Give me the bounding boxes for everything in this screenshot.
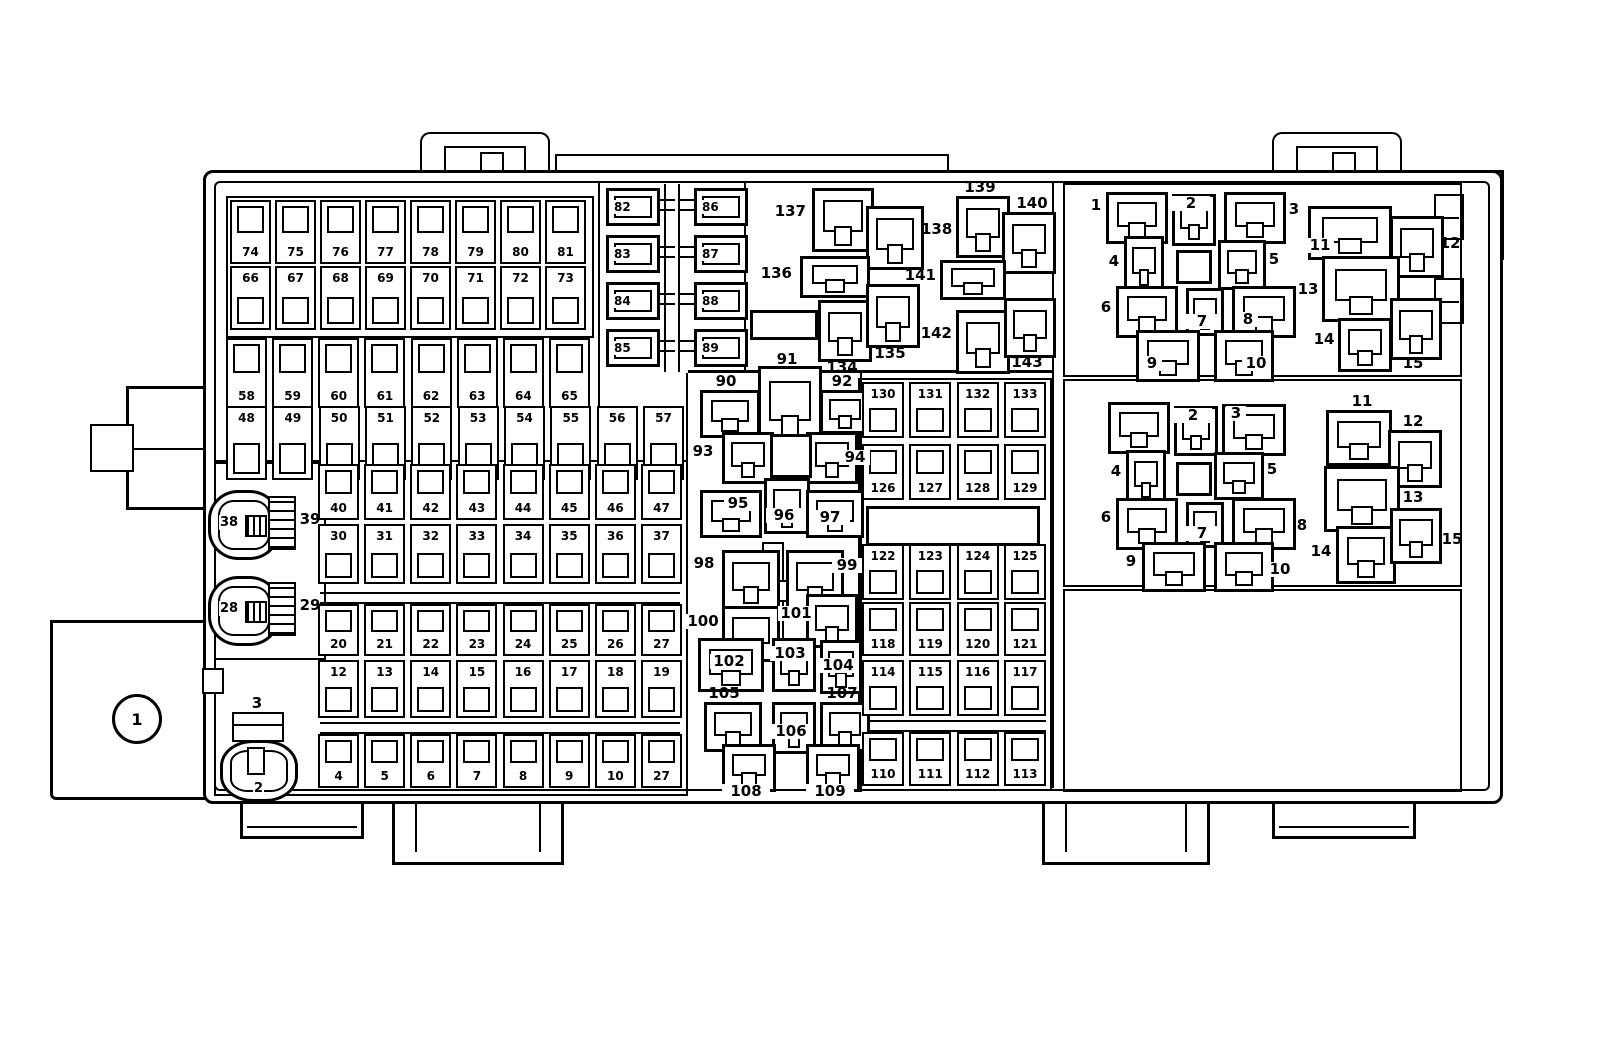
fuse-18-label: 18 (597, 666, 634, 678)
fuse-70-label: 70 (412, 272, 449, 284)
fuse-row-110-113: 110111112113 (862, 732, 1046, 786)
fuse-110: 110 (862, 732, 904, 786)
right-grid-slot (866, 506, 1040, 546)
fuse-53-label: 53 (460, 412, 497, 424)
fuse-46-label: 46 (597, 502, 634, 514)
fuse-89-label: 89 (701, 341, 720, 355)
fuse-26: 26 (595, 604, 636, 656)
fuse-83-label: 83 (613, 247, 632, 261)
fuse-6: 6 (410, 734, 451, 788)
rbt-13-label: 13 (1296, 282, 1320, 297)
fuse-117-label: 117 (1006, 666, 1044, 678)
relay-98 (722, 550, 780, 610)
fuse-68-label: 68 (322, 272, 359, 284)
rbt-relay-4 (1124, 236, 1164, 292)
label-39: 39 (296, 512, 324, 527)
rbm-8-label: 8 (1292, 518, 1312, 533)
mounting-tab-bottom-2 (392, 796, 564, 865)
fuse-56-label: 56 (599, 412, 636, 424)
rbt-2-label: 2 (1172, 196, 1210, 211)
fuse-59-label: 59 (274, 390, 311, 402)
fuse-65: 65 (549, 338, 590, 408)
fuse-69-label: 69 (367, 272, 404, 284)
fuse-123-label: 123 (911, 550, 949, 562)
fuse-84: 84 (606, 282, 660, 320)
fuse-84-label: 84 (613, 294, 632, 308)
fuse-82-label: 82 (613, 200, 632, 214)
fuse-21-label: 21 (366, 638, 403, 650)
relay-102-label: 102 (710, 654, 748, 669)
fuse-122: 122 (862, 544, 904, 600)
rbm-6-label: 6 (1098, 510, 1114, 525)
callout-1-circle: 1 (112, 694, 162, 744)
rbm-relay-unlabeled (1108, 402, 1170, 454)
relay-142 (956, 310, 1010, 374)
fuse-6-label: 6 (412, 770, 449, 782)
fuse-114-label: 114 (864, 666, 902, 678)
relay-100-label: 100 (686, 614, 720, 629)
rbt-1-label: 1 (1088, 198, 1104, 213)
relay-143 (1004, 298, 1056, 358)
fuse-60-label: 60 (320, 390, 357, 402)
side-bracket-left (126, 386, 214, 510)
relay-101-label: 101 (778, 606, 814, 621)
fuse-64-label: 64 (505, 390, 542, 402)
bracket-3-strip (232, 712, 284, 742)
fuse-51-label: 51 (367, 412, 404, 424)
fuse-15: 15 (456, 660, 497, 718)
relay-107-label: 107 (820, 686, 864, 701)
fuse-79-label: 79 (457, 246, 494, 258)
relay-141 (940, 260, 1006, 300)
fuse-75: 75 (275, 200, 316, 264)
fuse-16-label: 16 (505, 666, 542, 678)
rbm-relay-15 (1390, 508, 1442, 564)
relay-109-label: 109 (806, 784, 854, 799)
fuse-10-label: 10 (597, 770, 634, 782)
relay-136-label: 136 (752, 266, 792, 281)
fuse-78: 78 (410, 200, 451, 264)
center-socket-square (770, 434, 812, 478)
fuse-44: 44 (503, 464, 544, 520)
fuse-58-label: 58 (228, 390, 265, 402)
fuse-73: 73 (545, 266, 586, 330)
fuse-8: 8 (503, 734, 544, 788)
fuse-22-label: 22 (412, 638, 449, 650)
fuse-row-114-117: 114115116117 (862, 660, 1046, 716)
fuse-10: 10 (595, 734, 636, 788)
rbm-socket-square (1176, 462, 1212, 496)
label-29: 29 (296, 598, 324, 613)
left-wall-latch (202, 668, 224, 694)
fuse-row-58-65: 5859606162636465 (226, 338, 590, 408)
fuse-82: 82 (606, 188, 660, 226)
fuse-132-label: 132 (959, 388, 997, 400)
rbt-7-label: 7 (1186, 314, 1218, 329)
fuse-row-122-125: 122123124125 (862, 544, 1046, 600)
fuse-75-label: 75 (277, 246, 314, 258)
rbt-9-label: 9 (1142, 356, 1162, 371)
fuse-120: 120 (957, 602, 999, 656)
fuse-88-label: 88 (701, 294, 720, 308)
fuse-47-label: 47 (643, 502, 680, 514)
rbm-9-label: 9 (1122, 554, 1140, 569)
fuse-113-label: 113 (1006, 768, 1044, 780)
fuse-36: 36 (595, 524, 636, 584)
rbt-socket-square (1176, 250, 1212, 284)
rbm-relay-13 (1324, 466, 1400, 532)
fuse-116: 116 (957, 660, 999, 716)
fuse-45-label: 45 (551, 502, 588, 514)
connector-29-strip (268, 582, 296, 636)
fuse-4: 4 (318, 734, 359, 788)
fuse-111: 111 (909, 732, 951, 786)
fuse-62-label: 62 (413, 390, 450, 402)
fuse-117: 117 (1004, 660, 1046, 716)
right-bay-bottom-outline (1063, 589, 1462, 792)
fuse-9: 9 (549, 734, 590, 788)
fuse-115: 115 (909, 660, 951, 716)
fuse-37-label: 37 (643, 530, 680, 542)
fuse-66: 66 (230, 266, 271, 330)
fuse-123: 123 (909, 544, 951, 600)
fuse-43-label: 43 (458, 502, 495, 514)
fuse-124-label: 124 (959, 550, 997, 562)
rbt-relay-13 (1322, 256, 1400, 322)
fuse-41-label: 41 (366, 502, 403, 514)
fuse-24-label: 24 (505, 638, 542, 650)
fuse-66-label: 66 (232, 272, 269, 284)
relay-141-label: 141 (896, 268, 936, 283)
rbt-5-label: 5 (1264, 252, 1284, 267)
fuse-12: 12 (318, 660, 359, 718)
fuse-23-label: 23 (458, 638, 495, 650)
rbm-3-label: 3 (1226, 406, 1246, 421)
relay-142-label: 142 (910, 326, 952, 341)
fuse-24: 24 (503, 604, 544, 656)
fuse-129: 129 (1004, 444, 1046, 500)
connector-2: 2 (220, 740, 298, 802)
fuse-25-label: 25 (551, 638, 588, 650)
fuse-57-label: 57 (645, 412, 682, 424)
fuse-17: 17 (549, 660, 590, 718)
fuse-12-label: 12 (320, 666, 357, 678)
fuse-18: 18 (595, 660, 636, 718)
fuse-125-label: 125 (1006, 550, 1044, 562)
fuse-121: 121 (1004, 602, 1046, 656)
fuse-87-label: 87 (701, 247, 720, 261)
connector-2-label: 2 (253, 781, 264, 796)
relay-96-label: 96 (766, 508, 802, 523)
relay-97-label: 97 (810, 510, 850, 525)
fuse-110-label: 110 (864, 768, 902, 780)
fuse-30: 30 (318, 524, 359, 584)
callout-1-label: 1 (131, 710, 142, 729)
relay-91-label: 91 (758, 352, 816, 367)
fuse-88: 88 (694, 282, 748, 320)
fuse-81-label: 81 (547, 246, 584, 258)
fuse-13-label: 13 (366, 666, 403, 678)
bus-bar-2 (320, 722, 680, 734)
fuse-22: 22 (410, 604, 451, 656)
label-3: 3 (234, 696, 280, 711)
rbt-relay-14 (1338, 318, 1392, 372)
fuse-36-label: 36 (597, 530, 634, 542)
fuse-row-130-133: 130131132133 (862, 382, 1046, 438)
relay-92-label: 92 (820, 374, 864, 389)
fuse-83: 83 (606, 235, 660, 273)
fuse-5-label: 5 (366, 770, 403, 782)
fuse-67-label: 67 (277, 272, 314, 284)
rbm-relay-4 (1126, 450, 1166, 504)
fuse-58: 58 (226, 338, 267, 408)
fuse-50-label: 50 (321, 412, 358, 424)
fuse-7: 7 (456, 734, 497, 788)
fuse-81: 81 (545, 200, 586, 264)
fuse-row-126-129: 126127128129 (862, 444, 1046, 500)
fuse-34: 34 (503, 524, 544, 584)
rbt-12-label: 12 (1438, 236, 1462, 251)
fuse-row-74-81: 7475767778798081 (230, 200, 586, 264)
fuse-72: 72 (500, 266, 541, 330)
relay-90 (700, 390, 760, 438)
relay-95-label: 95 (724, 496, 752, 511)
fuse-113: 113 (1004, 732, 1046, 786)
connector-39-strip (268, 496, 296, 550)
relay-137-label: 137 (766, 204, 806, 219)
fuse-9-label: 9 (551, 770, 588, 782)
fuse-32: 32 (410, 524, 451, 584)
fuse-133: 133 (1004, 382, 1046, 438)
fuse-13: 13 (364, 660, 405, 718)
fuse-row-12-19: 1213141516171819 (318, 660, 682, 718)
cartridge-column-left: 82838485 (606, 188, 660, 367)
fuse-31-label: 31 (366, 530, 403, 542)
fuse-80: 80 (500, 200, 541, 264)
fuse-87: 87 (694, 235, 748, 273)
fuse-42: 42 (410, 464, 451, 520)
fuse-133-label: 133 (1006, 388, 1044, 400)
connector-38-label: 38 (219, 515, 239, 530)
rbt-3-label: 3 (1284, 202, 1304, 217)
rbm-relay-10 (1214, 542, 1274, 592)
relay-93-label: 93 (688, 444, 718, 459)
bus-bar-1 (320, 592, 680, 604)
fuse-27: 27 (641, 734, 682, 788)
fuse-31: 31 (364, 524, 405, 584)
fuse-63: 63 (457, 338, 498, 408)
fuse-40: 40 (318, 464, 359, 520)
fuse-85: 85 (606, 329, 660, 367)
fuse-26-label: 26 (597, 638, 634, 650)
fuse-69: 69 (365, 266, 406, 330)
fuse-19: 19 (641, 660, 682, 718)
fuse-127: 127 (909, 444, 951, 500)
fuse-78-label: 78 (412, 246, 449, 258)
rbt-4-label: 4 (1106, 254, 1122, 269)
rbm-relay-11 (1326, 410, 1392, 466)
relay-138-label: 138 (921, 222, 961, 237)
fuse-34-label: 34 (505, 530, 542, 542)
fuse-47: 47 (641, 464, 682, 520)
fuse-111-label: 111 (911, 768, 949, 780)
relay-94-label: 94 (840, 450, 870, 465)
fuse-120-label: 120 (959, 638, 997, 650)
fuse-row-4-11: 4567891027 (318, 734, 682, 788)
relay-99-label: 99 (832, 558, 862, 573)
fuse-23: 23 (456, 604, 497, 656)
relay-136 (800, 256, 870, 298)
fuse-45: 45 (549, 464, 590, 520)
fuse-44-label: 44 (505, 502, 542, 514)
relay-135-label: 135 (866, 346, 914, 361)
fuse-35-label: 35 (551, 530, 588, 542)
relay-93 (722, 432, 774, 484)
fuse-62: 62 (411, 338, 452, 408)
fuse-row-40-47: 4041424344454647 (318, 464, 682, 520)
fuse-35: 35 (549, 524, 590, 584)
fuse-125: 125 (1004, 544, 1046, 600)
fuse-126-label: 126 (864, 482, 902, 494)
rbm-10-label: 10 (1266, 562, 1294, 577)
fuse-130: 130 (862, 382, 904, 438)
fuse-72-label: 72 (502, 272, 539, 284)
fuse-40-label: 40 (320, 502, 357, 514)
rbm-7-label: 7 (1186, 526, 1218, 541)
rbm-relay-14 (1336, 526, 1396, 584)
fuse-20-label: 20 (320, 638, 357, 650)
relay-98-label: 98 (688, 556, 720, 571)
rbt-6-label: 6 (1098, 300, 1114, 315)
fuse-42-label: 42 (412, 502, 449, 514)
connector-38-keyway (245, 515, 267, 537)
relay-138 (866, 206, 924, 270)
fuse-49-label: 49 (274, 412, 311, 424)
fuse-55-label: 55 (552, 412, 589, 424)
fuse-122-label: 122 (864, 550, 902, 562)
fuse-76-label: 76 (322, 246, 359, 258)
cartridge-column-right: 86878889 (694, 188, 748, 367)
fuse-14: 14 (410, 660, 451, 718)
fuse-129-label: 129 (1006, 482, 1044, 494)
fuse-5: 5 (364, 734, 405, 788)
relay-104-label: 104 (818, 658, 858, 673)
rbt-8-label: 8 (1238, 312, 1258, 327)
fuse-41: 41 (364, 464, 405, 520)
rbm-relay-5 (1214, 452, 1264, 500)
rbt-11-label: 11 (1306, 238, 1334, 253)
fuse-37: 37 (641, 524, 682, 584)
fuse-70: 70 (410, 266, 451, 330)
fuse-121-label: 121 (1006, 638, 1044, 650)
fuse-86: 86 (694, 188, 748, 226)
fuse-118-label: 118 (864, 638, 902, 650)
fuse-43: 43 (456, 464, 497, 520)
rbt-10-label: 10 (1242, 356, 1270, 371)
fuse-32-label: 32 (412, 530, 449, 542)
wall-left-center (598, 182, 600, 406)
relay-140-label: 140 (1008, 196, 1056, 211)
relay-108-label: 108 (722, 784, 770, 799)
connector-2-key (247, 747, 265, 775)
fuse-48: 48 (226, 406, 267, 480)
fuse-row-118-121: 118119120121 (862, 602, 1046, 656)
fuse-7-label: 7 (458, 770, 495, 782)
fuse-20: 20 (318, 604, 359, 656)
fuse-85-label: 85 (613, 341, 632, 355)
relay-106-label: 106 (770, 724, 812, 739)
rbm-13-label: 13 (1398, 490, 1428, 505)
fuse-25: 25 (549, 604, 590, 656)
fuse-116-label: 116 (959, 666, 997, 678)
fuse-114: 114 (862, 660, 904, 716)
rbm-relay-9 (1142, 542, 1206, 592)
rbt-14-label: 14 (1312, 332, 1336, 347)
rbm-14-label: 14 (1308, 544, 1334, 559)
fuse-14-label: 14 (412, 666, 449, 678)
rbm-4-label: 4 (1108, 464, 1124, 479)
rbt-relay-15 (1390, 298, 1442, 360)
fuse-119: 119 (909, 602, 951, 656)
relay-143-label: 143 (1004, 355, 1050, 370)
fuse-74: 74 (230, 200, 271, 264)
fuse-67: 67 (275, 266, 316, 330)
mounting-tab-bottom-3 (1042, 796, 1210, 865)
fuse-77-label: 77 (367, 246, 404, 258)
connector-28-label: 28 (219, 601, 239, 616)
fuse-27: 27 (641, 604, 682, 656)
fuse-48-label: 48 (228, 412, 265, 424)
side-bracket-left-tab (90, 424, 134, 472)
fuse-52-label: 52 (413, 412, 450, 424)
relay-105-label: 105 (704, 686, 744, 701)
relay-139-label: 139 (956, 180, 1004, 195)
fuse-27-label: 27 (643, 770, 680, 782)
fuse-127-label: 127 (911, 482, 949, 494)
rbm-2-label: 2 (1174, 408, 1212, 423)
relay-103-label: 103 (770, 646, 810, 661)
relay-137 (812, 188, 874, 252)
fuse-63-label: 63 (459, 390, 496, 402)
fuse-131-label: 131 (911, 388, 949, 400)
fuse-61: 61 (364, 338, 405, 408)
fuse-86-label: 86 (701, 200, 720, 214)
fuse-19-label: 19 (643, 666, 680, 678)
fuse-row-66-73: 6667686970717273 (230, 266, 586, 330)
bus-bar-3 (862, 720, 1046, 732)
fuse-59: 59 (272, 338, 313, 408)
fuse-46: 46 (595, 464, 636, 520)
fuse-row-20-27: 2021222324252627 (318, 604, 682, 656)
rbm-11-label: 11 (1348, 394, 1376, 409)
rbm-12-label: 12 (1398, 414, 1428, 429)
fuse-8-label: 8 (505, 770, 542, 782)
fuse-4-label: 4 (320, 770, 357, 782)
fuse-130-label: 130 (864, 388, 902, 400)
fuse-30-label: 30 (320, 530, 357, 542)
fuse-71-label: 71 (457, 272, 494, 284)
mounting-tab-top-right (1272, 132, 1402, 174)
fuse-33-label: 33 (458, 530, 495, 542)
fuse-80-label: 80 (502, 246, 539, 258)
fuse-115-label: 115 (911, 666, 949, 678)
fuse-119-label: 119 (911, 638, 949, 650)
fuse-33: 33 (456, 524, 497, 584)
fuse-79: 79 (455, 200, 496, 264)
fuse-71: 71 (455, 266, 496, 330)
rbt-relay-3 (1224, 192, 1286, 244)
rbt-15-label: 15 (1398, 356, 1428, 371)
